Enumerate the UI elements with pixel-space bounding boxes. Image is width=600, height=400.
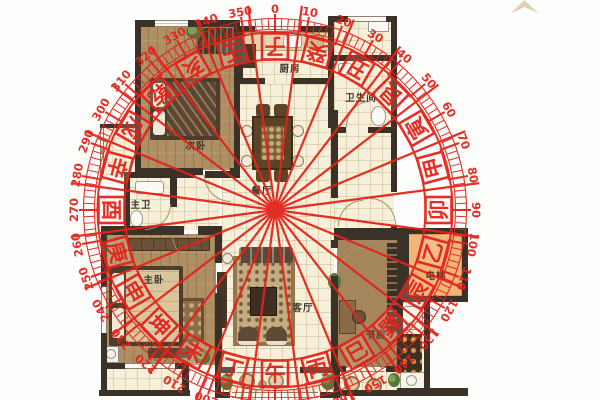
- bed2-pillows: [153, 111, 165, 135]
- wall: [170, 178, 177, 207]
- svg-text:甲: 甲: [419, 154, 448, 180]
- svg-text:260: 260: [68, 232, 86, 258]
- wall: [237, 26, 243, 84]
- svg-text:70: 70: [455, 131, 474, 151]
- svg-text:60: 60: [439, 99, 459, 120]
- wall: [331, 110, 338, 198]
- wall: [293, 78, 334, 84]
- room-label-canting: 餐厅: [251, 183, 272, 197]
- svg-text:350: 350: [227, 3, 253, 21]
- floorplan-screenshot: 次卧厨房卫生间餐厅主卫主卧客厅书房电梯 子癸丑艮寅甲卯乙辰巽巳丙午丁未坤申庚酉辛…: [0, 0, 600, 400]
- svg-text:寅: 寅: [401, 113, 432, 143]
- svg-text:卯: 卯: [427, 200, 451, 221]
- window: [237, 367, 298, 373]
- room-label-ciwo: 次卧: [185, 138, 206, 152]
- bedroom-bench: [148, 348, 190, 358]
- svg-text:0: 0: [271, 2, 279, 16]
- wall: [124, 172, 195, 178]
- room-label-zhuwei: 主卫: [130, 197, 151, 211]
- wall: [135, 20, 141, 175]
- window: [348, 366, 384, 372]
- utility-fixture: [402, 306, 423, 330]
- bed2-blanket: [167, 82, 216, 136]
- toilet: [371, 106, 386, 126]
- floor-left-balcony: [100, 126, 137, 176]
- balcony-chair: [239, 373, 255, 389]
- bed2-pillows: [153, 83, 165, 107]
- room-label-keting: 客厅: [292, 300, 313, 314]
- plant: [321, 374, 335, 390]
- desk-chair: [352, 310, 366, 324]
- window: [100, 128, 104, 174]
- svg-text:270: 270: [67, 198, 81, 222]
- dining-chair-round: [292, 155, 304, 167]
- wall: [403, 234, 409, 296]
- wall: [124, 172, 130, 232]
- sofa: [239, 247, 293, 263]
- kitchen-stove: [307, 35, 324, 48]
- wall: [99, 390, 190, 396]
- wall: [397, 296, 468, 302]
- wall: [424, 302, 430, 390]
- floor-master-balcony: [101, 366, 185, 392]
- mbath-toilet: [130, 210, 143, 227]
- window: [348, 16, 386, 22]
- wall: [215, 293, 222, 367]
- wall: [397, 388, 468, 396]
- dining-chair: [256, 169, 270, 182]
- kitchen-sink: [283, 35, 302, 48]
- bath-sink: [338, 63, 352, 75]
- svg-text:10: 10: [301, 4, 319, 21]
- wall: [215, 226, 222, 263]
- dining-table-runner: [261, 126, 284, 160]
- svg-text:310: 310: [108, 67, 134, 94]
- window: [232, 392, 318, 398]
- wall: [215, 392, 230, 398]
- coffee-table: [250, 287, 277, 316]
- room-label-weishengjian: 卫生间: [345, 90, 377, 104]
- svg-text:80: 80: [465, 166, 482, 184]
- master-bed-pillow: [112, 308, 124, 338]
- wall: [334, 55, 397, 61]
- utility-sink-bowl: [406, 375, 417, 386]
- svg-text:250: 250: [75, 265, 96, 292]
- svg-text:50: 50: [418, 70, 439, 91]
- plant: [196, 350, 210, 364]
- window: [101, 287, 107, 333]
- wall: [320, 392, 340, 398]
- wall: [391, 16, 397, 192]
- room-label-shufang: 书房: [365, 327, 386, 341]
- wall: [331, 276, 338, 367]
- wall: [338, 390, 404, 396]
- armchair: [238, 327, 259, 345]
- mbath-sink: [135, 181, 164, 194]
- dining-chair-round: [292, 125, 304, 137]
- dining-chair: [274, 169, 288, 182]
- window: [155, 20, 188, 27]
- room-label-zhuwo: 主卧: [143, 272, 164, 286]
- svg-text:酉: 酉: [99, 200, 123, 221]
- svg-text:90: 90: [469, 202, 483, 218]
- wall: [338, 366, 346, 372]
- plant: [388, 373, 400, 387]
- svg-text:300: 300: [89, 96, 113, 124]
- wall: [101, 226, 107, 287]
- wall: [100, 124, 137, 128]
- balcony-table: [258, 380, 267, 389]
- wall: [331, 240, 338, 248]
- window: [125, 363, 175, 369]
- svg-text:290: 290: [75, 128, 96, 155]
- wall: [462, 228, 468, 302]
- room-label-chufang: 厨房: [279, 61, 300, 75]
- wall: [380, 228, 468, 234]
- plant: [220, 374, 233, 390]
- master-bed-pillow: [112, 273, 124, 303]
- north-star-icon: [511, 0, 538, 13]
- svg-text:280: 280: [68, 162, 86, 188]
- window: [255, 26, 300, 32]
- floor-elevator: [407, 233, 463, 297]
- wall: [182, 363, 189, 396]
- armchair: [266, 327, 287, 345]
- washing-machine-door: [106, 349, 116, 359]
- balcony-chair: [268, 373, 284, 389]
- wall: [237, 78, 265, 84]
- room-label-dianti: 电梯: [425, 268, 446, 282]
- side-table: [222, 253, 233, 264]
